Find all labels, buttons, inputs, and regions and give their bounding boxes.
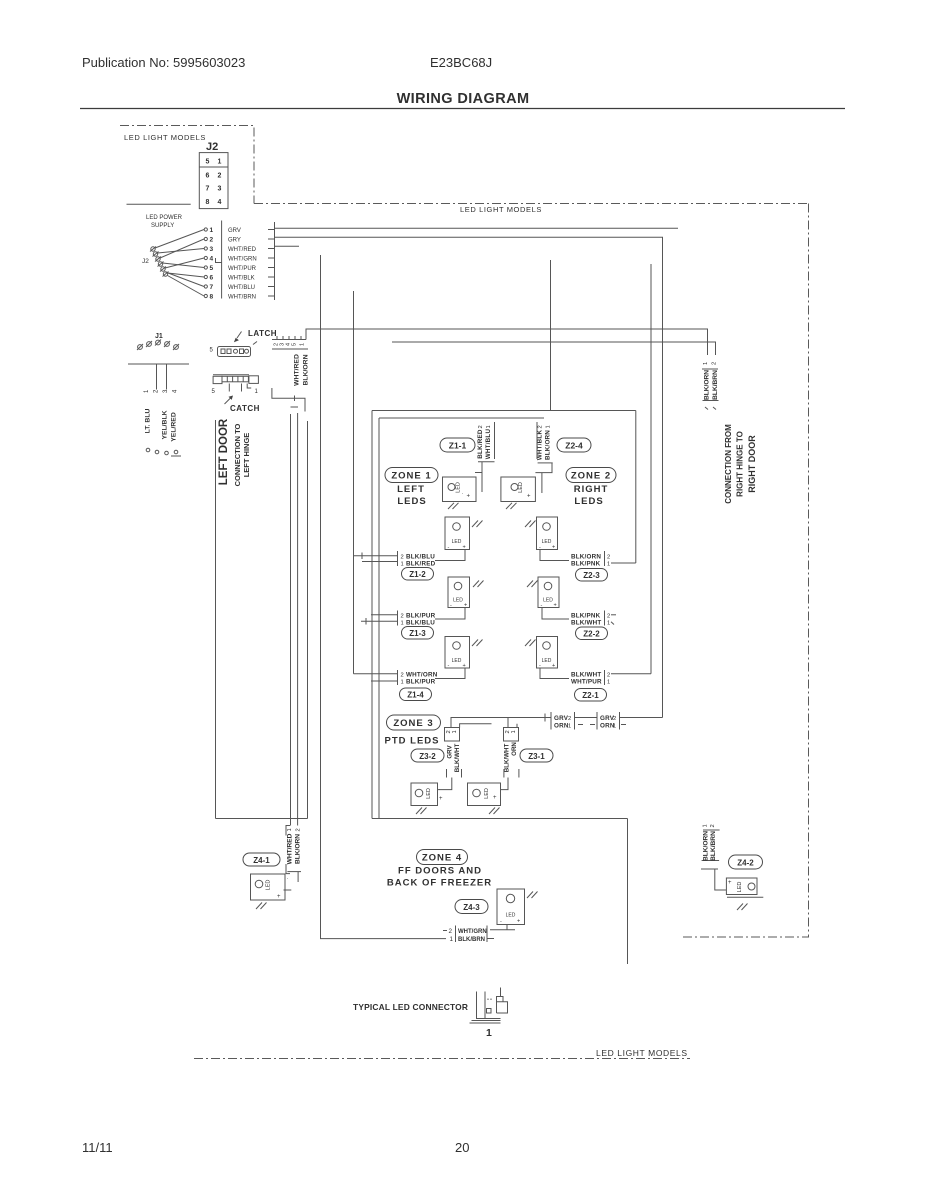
svg-text:5: 5	[292, 343, 298, 346]
svg-text:BLK/ORN: BLK/ORN	[571, 553, 601, 560]
svg-text:GRV: GRV	[447, 744, 454, 758]
svg-text:1: 1	[703, 362, 709, 365]
svg-text:BLK/ORN: BLK/ORN	[295, 834, 302, 864]
svg-text:LED: LED	[543, 598, 553, 604]
svg-text:WHT/ORN: WHT/ORN	[406, 672, 438, 679]
svg-text:J1: J1	[155, 333, 163, 340]
svg-text:2: 2	[401, 614, 404, 620]
svg-text:CATCH: CATCH	[230, 404, 260, 413]
svg-text:LEFT DOOR: LEFT DOOR	[218, 418, 230, 485]
svg-text:WHT/GRN: WHT/GRN	[458, 929, 487, 935]
svg-text:BLK/PUR: BLK/PUR	[406, 613, 436, 620]
svg-text:2: 2	[401, 673, 404, 679]
svg-text:LED LIGHT MODELS: LED LIGHT MODELS	[124, 133, 206, 142]
svg-text:RIGHT HINGE TO: RIGHT HINGE TO	[736, 431, 745, 497]
svg-text:2: 2	[478, 425, 484, 428]
svg-text:2: 2	[607, 614, 610, 620]
svg-text:LED: LED	[452, 539, 462, 545]
svg-text:-: -	[500, 919, 502, 925]
svg-text:Z2-4: Z2-4	[565, 441, 583, 451]
svg-text:1: 1	[450, 936, 454, 943]
svg-text:WHT/BLU: WHT/BLU	[485, 429, 492, 460]
svg-text:BLK/PUR: BLK/PUR	[406, 679, 436, 686]
svg-text:2: 2	[296, 828, 302, 831]
svg-text:+: +	[554, 603, 557, 609]
svg-text:Z4-3: Z4-3	[463, 903, 480, 912]
svg-text:CONNECTION TO: CONNECTION TO	[233, 423, 242, 486]
svg-text:WHT/RED: WHT/RED	[286, 833, 293, 864]
svg-text:LATCH: LATCH	[248, 329, 277, 338]
svg-text:Z3-2: Z3-2	[419, 752, 436, 761]
svg-text:BLK/BRN: BLK/BRN	[458, 937, 485, 943]
svg-text:Z4-1: Z4-1	[253, 856, 270, 865]
svg-text:3: 3	[210, 246, 214, 253]
svg-text:BLK/RED: BLK/RED	[406, 560, 436, 567]
svg-text:LED: LED	[266, 880, 272, 891]
svg-text:GRV: GRV	[228, 228, 241, 234]
svg-text:1: 1	[210, 227, 214, 234]
svg-text:11/11: 11/11	[82, 1140, 113, 1155]
svg-text:4: 4	[218, 199, 222, 206]
svg-text:1: 1	[401, 561, 404, 567]
svg-text:ZONE 4: ZONE 4	[422, 853, 462, 864]
svg-text:2: 2	[712, 362, 718, 365]
svg-text:WHT/BLK: WHT/BLK	[537, 430, 544, 461]
svg-text:8: 8	[210, 294, 214, 301]
svg-text:ZONE 3: ZONE 3	[393, 718, 433, 729]
svg-text:1: 1	[287, 828, 293, 831]
svg-text:+: +	[527, 494, 531, 500]
svg-text:BLK/BRN: BLK/BRN	[712, 370, 719, 400]
svg-text:5: 5	[206, 159, 210, 166]
svg-text:LED: LED	[453, 598, 463, 604]
svg-text:.: .	[439, 786, 440, 792]
svg-text:2: 2	[613, 716, 616, 722]
svg-text:+: +	[517, 919, 520, 925]
svg-text:BLK/ORN: BLK/ORN	[703, 831, 710, 861]
svg-text:LED: LED	[426, 788, 432, 799]
svg-text:WHT/BLU: WHT/BLU	[228, 285, 255, 291]
svg-text:Publication No: 5995603023: Publication No: 5995603023	[82, 55, 245, 70]
svg-text:GRY: GRY	[228, 237, 241, 243]
svg-text:LED: LED	[737, 882, 743, 893]
svg-text:SUPPLY: SUPPLY	[151, 223, 174, 229]
svg-text:+: +	[728, 880, 732, 886]
svg-text:1: 1	[511, 730, 517, 733]
svg-text:WHT/RED: WHT/RED	[228, 247, 257, 253]
svg-text:LEDS: LEDS	[574, 496, 603, 507]
svg-text:20: 20	[455, 1140, 469, 1155]
svg-text:E23BC68J: E23BC68J	[430, 55, 492, 70]
svg-text:LED: LED	[484, 788, 490, 799]
svg-text:BLK/WHT: BLK/WHT	[571, 620, 601, 627]
svg-text:WHT/PUR: WHT/PUR	[228, 266, 257, 272]
svg-text:7: 7	[206, 186, 210, 193]
svg-text:1: 1	[607, 680, 610, 686]
svg-text:8: 8	[206, 199, 210, 206]
svg-text:WHT/GRN: WHT/GRN	[228, 256, 257, 262]
svg-text:BLK/WHT: BLK/WHT	[504, 744, 511, 773]
svg-text:LED: LED	[518, 482, 524, 493]
svg-text:LED LIGHT MODELS: LED LIGHT MODELS	[460, 205, 542, 214]
svg-text:Z1-3: Z1-3	[409, 629, 426, 638]
svg-text:1: 1	[613, 724, 616, 730]
svg-text:LED: LED	[542, 658, 552, 664]
svg-text:Z1-2: Z1-2	[409, 570, 426, 579]
svg-text:1: 1	[218, 159, 222, 166]
svg-text:BLK/WHT: BLK/WHT	[454, 744, 461, 773]
svg-text:ORN: ORN	[554, 723, 569, 730]
svg-text:RIGHT: RIGHT	[574, 484, 609, 495]
svg-text:WHT/RED: WHT/RED	[294, 354, 301, 386]
svg-text:WHT/PUR: WHT/PUR	[571, 679, 602, 686]
svg-text:1: 1	[546, 425, 552, 428]
svg-text:Z1-1: Z1-1	[449, 441, 467, 451]
svg-text:6: 6	[210, 275, 214, 282]
svg-text:BLK/WHT: BLK/WHT	[571, 672, 601, 679]
svg-text:BLK/ORN: BLK/ORN	[704, 370, 711, 400]
svg-text:Z2-1: Z2-1	[582, 691, 599, 700]
svg-text:1: 1	[401, 621, 404, 627]
svg-text:BLK/RED: BLK/RED	[477, 429, 484, 459]
svg-text:1: 1	[401, 680, 404, 686]
svg-text:WIRING DIAGRAM: WIRING DIAGRAM	[397, 91, 530, 107]
svg-text:-: -	[448, 545, 450, 551]
svg-text:4: 4	[210, 256, 214, 263]
svg-text:1: 1	[486, 425, 492, 428]
svg-text:RIGHT DOOR: RIGHT DOOR	[747, 435, 757, 493]
svg-text:2: 2	[218, 173, 222, 180]
svg-text:TYPICAL LED CONNECTOR: TYPICAL LED CONNECTOR	[353, 1002, 468, 1012]
svg-text:LED LIGHT MODELS: LED LIGHT MODELS	[596, 1048, 688, 1058]
svg-text:2: 2	[710, 824, 716, 827]
svg-text:6: 6	[206, 173, 210, 180]
svg-text:LED: LED	[542, 539, 552, 545]
svg-text:J2: J2	[206, 141, 218, 153]
svg-text:BLK/ORN: BLK/ORN	[545, 430, 552, 460]
svg-text:BLK/ORN: BLK/ORN	[303, 354, 310, 385]
svg-text:LEDS: LEDS	[397, 496, 426, 507]
svg-text:Z1-4: Z1-4	[407, 691, 424, 700]
svg-text:BLK/BLU: BLK/BLU	[406, 553, 435, 560]
svg-text:BLK/PNK: BLK/PNK	[571, 560, 601, 567]
svg-text:5: 5	[210, 265, 214, 272]
svg-text:ZONE 1: ZONE 1	[391, 471, 431, 482]
svg-text:7: 7	[210, 284, 214, 291]
svg-text:Z2-2: Z2-2	[583, 630, 600, 639]
svg-text:J2: J2	[142, 258, 149, 265]
svg-text:2: 2	[449, 928, 453, 935]
svg-text:2: 2	[607, 673, 610, 679]
svg-text:LED: LED	[452, 658, 462, 664]
svg-text:BACK OF FREEZER: BACK OF FREEZER	[387, 878, 492, 889]
svg-text:2: 2	[568, 716, 571, 722]
svg-text:2: 2	[607, 554, 610, 560]
svg-text:1: 1	[452, 730, 458, 733]
svg-text:FF DOORS AND: FF DOORS AND	[398, 866, 482, 877]
svg-text:YEL/RED: YEL/RED	[171, 412, 178, 442]
svg-text:1: 1	[607, 561, 610, 567]
svg-text:+: +	[464, 603, 467, 609]
svg-text:+: +	[467, 494, 471, 500]
svg-text:Z3-1: Z3-1	[528, 752, 545, 761]
svg-text:ORN: ORN	[511, 742, 518, 756]
svg-text:1: 1	[300, 343, 306, 346]
svg-text:LEFT HINGE: LEFT HINGE	[242, 433, 251, 478]
svg-text:GRV: GRV	[554, 715, 569, 722]
svg-text:LT. BLU: LT. BLU	[145, 409, 152, 434]
svg-text:Z4-2: Z4-2	[737, 859, 754, 868]
svg-text:PTD LEDS: PTD LEDS	[385, 736, 440, 747]
svg-text:+: +	[439, 796, 443, 802]
svg-text:.: .	[462, 490, 463, 496]
svg-text:CONNECTION FROM: CONNECTION FROM	[724, 424, 733, 504]
svg-text:+: +	[493, 795, 497, 801]
svg-text:-: -	[448, 663, 450, 669]
svg-text:3: 3	[218, 186, 222, 193]
svg-text:BLK/BRN: BLK/BRN	[710, 831, 717, 861]
svg-text:+: +	[277, 894, 281, 900]
svg-text:BLK/BLU: BLK/BLU	[406, 620, 435, 627]
svg-text:LED: LED	[506, 913, 516, 919]
svg-text:ZONE 2: ZONE 2	[571, 471, 611, 482]
svg-text:+: +	[552, 545, 555, 551]
svg-text:1: 1	[486, 1027, 492, 1039]
svg-text:WHT/BLK: WHT/BLK	[228, 275, 255, 281]
svg-text:1: 1	[607, 621, 610, 627]
svg-text:2: 2	[538, 425, 544, 428]
svg-text:+: +	[552, 663, 555, 669]
svg-text:2: 2	[210, 237, 214, 244]
svg-text:YEL/BLK: YEL/BLK	[162, 410, 169, 439]
svg-text:LEFT: LEFT	[397, 484, 425, 495]
svg-text:LED POWER: LED POWER	[146, 215, 183, 221]
svg-text:2: 2	[401, 554, 404, 560]
svg-text:.: .	[287, 875, 288, 881]
svg-text:WHT/BRN: WHT/BRN	[228, 294, 256, 300]
svg-text:1: 1	[568, 724, 571, 730]
svg-text:BLK/PNK: BLK/PNK	[571, 613, 601, 620]
svg-text:-: -	[450, 603, 452, 609]
svg-text:Z2-3: Z2-3	[583, 571, 600, 580]
svg-text:LED: LED	[456, 482, 462, 493]
svg-text:1: 1	[703, 824, 709, 827]
